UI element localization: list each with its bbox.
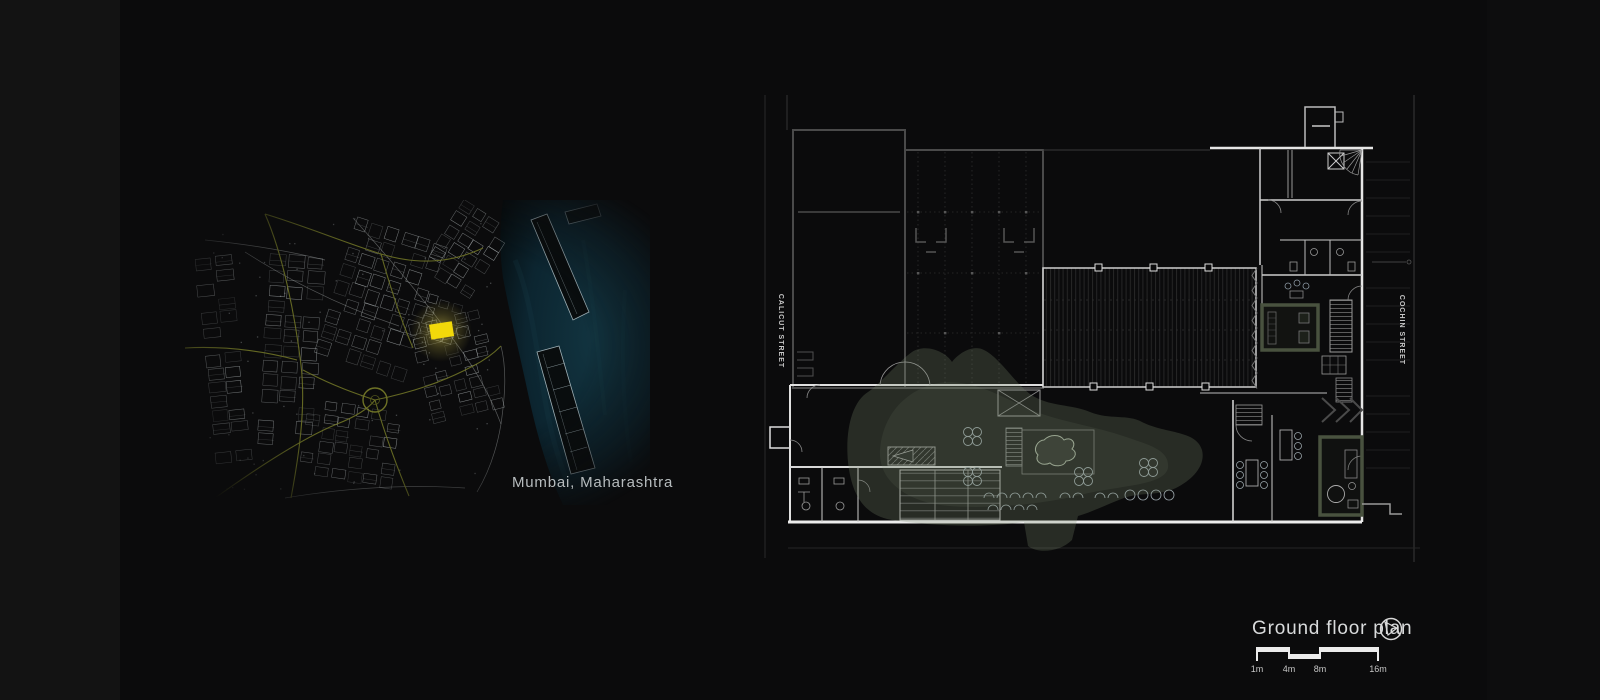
scale-bar: 1m 4m 8m 16m xyxy=(1246,642,1406,676)
city-map xyxy=(185,200,650,505)
scale-label-16m: 16m xyxy=(1369,664,1387,674)
board-margin-left xyxy=(0,0,120,700)
floor-plan-drawing: CALICUT STREET COCHIN STREET xyxy=(740,85,1470,570)
service-room xyxy=(1320,437,1362,515)
warehouse-block-left xyxy=(793,130,905,388)
map-caption: Mumbai, Maharashtra xyxy=(512,474,682,491)
meeting-room xyxy=(1262,305,1318,350)
scale-label-4m: 4m xyxy=(1283,664,1296,674)
street-label-left: CALICUT STREET xyxy=(777,294,784,368)
floor-plan-panel: CALICUT STREET COCHIN STREET xyxy=(740,85,1470,570)
presentation-board: Mumbai, Maharashtra xyxy=(0,0,1600,700)
striped-hall xyxy=(1043,264,1257,390)
north-arrow-icon xyxy=(1378,616,1404,642)
rooms-bottom-right xyxy=(1200,393,1402,522)
scale-label-8m: 8m xyxy=(1314,664,1327,674)
site-marker xyxy=(410,300,472,362)
board-margin-right xyxy=(1487,0,1600,700)
elevator xyxy=(1328,153,1344,169)
street-label-right: COCHIN STREET xyxy=(1398,295,1405,365)
scale-label-1m: 1m xyxy=(1251,664,1264,674)
city-map-panel xyxy=(185,200,650,505)
